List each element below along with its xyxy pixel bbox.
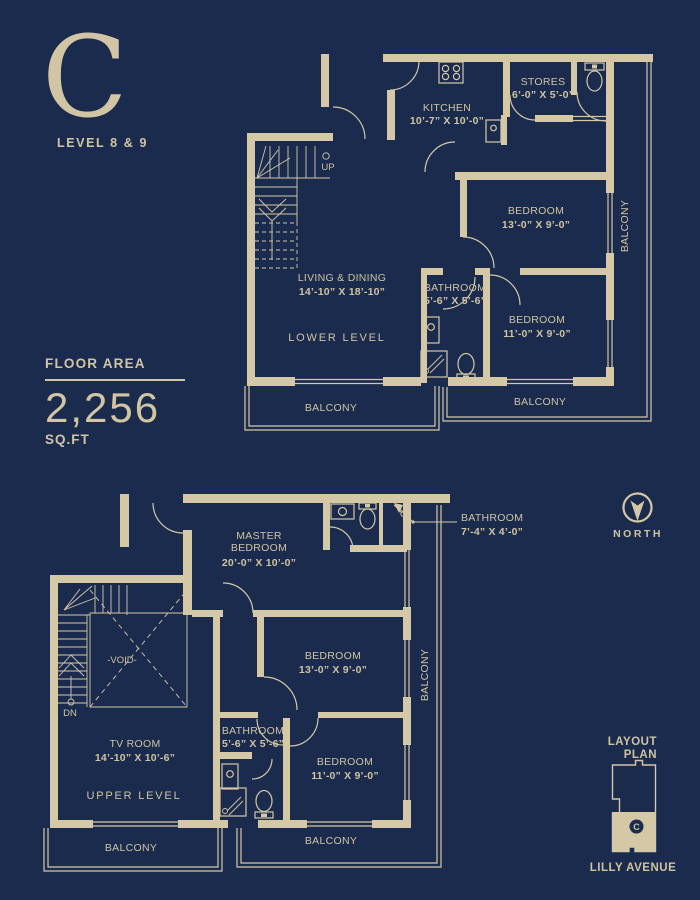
- layout-minimap: LAYOUT PLAN C LILLY AVENUE: [590, 736, 677, 874]
- bathroom-a-dims: 7’-4” X 4’-0”: [461, 526, 523, 538]
- bedroom-a-label: BEDROOM: [508, 205, 564, 217]
- balcony-label: BALCONY: [419, 649, 431, 701]
- north-arrow-icon: [631, 501, 645, 522]
- stores-label: STORES: [521, 76, 566, 88]
- bathroom2-toilet-icon: [255, 791, 273, 819]
- upper-level-label: UPPER LEVEL: [86, 790, 181, 802]
- stove-icon: [439, 62, 463, 83]
- bedroom-a-dims: 13’-0” X 9’-0”: [502, 219, 570, 231]
- balcony-label: BALCONY: [514, 396, 566, 408]
- kitchen-dims: 10’-7” X 10’-0”: [410, 115, 484, 127]
- lower-level-label: LOWER LEVEL: [288, 332, 385, 344]
- master-bedroom-dims: 20’-0” X 10’-0”: [222, 557, 296, 569]
- balcony-label: BALCONY: [105, 842, 157, 854]
- kitchen-label: KITCHEN: [423, 102, 471, 114]
- bathroom-label: BATHROOM: [424, 282, 486, 294]
- living-dims: 14’-10” X 18’-10”: [299, 286, 385, 298]
- lower-staircase: [255, 146, 330, 270]
- master-bedroom-label-2: BEDROOM: [231, 542, 287, 554]
- shower2-icon: [220, 788, 246, 816]
- layout-title-2: PLAN: [624, 749, 657, 761]
- balcony-label: BALCONY: [305, 402, 357, 414]
- master-sink-icon: [331, 504, 354, 519]
- floorplan-page: C LEVEL 8 & 9 FLOOR AREA 2,256 SQ.FT: [0, 0, 700, 900]
- bathroom-b-label: BATHROOM: [222, 725, 284, 737]
- bedroom-a-label: BEDROOM: [305, 650, 361, 662]
- unit-marker-letter: C: [633, 822, 640, 832]
- stair-dn-label: DN: [63, 708, 77, 719]
- upper-level-plan: MASTER BEDROOM 20’-0” X 10’-0” BATHROOM …: [44, 494, 523, 871]
- wc-toilet-icon: [585, 63, 604, 91]
- bedroom-b-dims: 11’-0” X 9’-0”: [311, 770, 379, 782]
- bathroom2-sink-icon: [222, 764, 238, 789]
- north-label: NORTH: [613, 528, 663, 540]
- upper-labels: MASTER BEDROOM 20’-0” X 10’-0” BATHROOM …: [63, 512, 523, 854]
- bedroom-b-label: BEDROOM: [317, 756, 373, 768]
- north-indicator: NORTH: [613, 494, 663, 541]
- bathroom-a-label: BATHROOM: [461, 512, 523, 524]
- void-label: -VOID-: [107, 655, 137, 666]
- bathroom-b-dims: 5’-6” X 5’-6”: [222, 738, 284, 750]
- bathroom-dims: 5’-6” X 5’-6”: [424, 295, 486, 307]
- bathroom-toilet-icon: [457, 354, 475, 381]
- lower-labels: KITCHEN 10’-7” X 10’-0” STORES 6’-0” X 5…: [288, 76, 631, 414]
- tv-room-dims: 14’-10” X 10’-6”: [95, 752, 175, 764]
- upper-windows: [93, 550, 409, 826]
- stair-up-label: UP: [321, 162, 334, 173]
- layout-title-1: LAYOUT: [608, 736, 657, 748]
- master-toilet-icon: [359, 503, 376, 529]
- stores-dims: 6’-0” X 5’-0”: [512, 89, 574, 101]
- street-label: LILLY AVENUE: [590, 862, 677, 874]
- floorplan-svg: KITCHEN 10’-7” X 10’-0” STORES 6’-0” X 5…: [0, 0, 700, 900]
- living-label: LIVING & DINING: [298, 272, 387, 284]
- void-area: [90, 590, 187, 707]
- master-bedroom-label-1: MASTER: [236, 530, 282, 542]
- balcony-label: BALCONY: [619, 200, 631, 252]
- lower-level-plan: KITCHEN 10’-7” X 10’-0” STORES 6’-0” X 5…: [245, 54, 653, 430]
- bedroom-b-label: BEDROOM: [509, 314, 565, 326]
- upper-staircase: [58, 585, 127, 707]
- bedroom-a-dims: 13’-0” X 9’-0”: [299, 664, 367, 676]
- bedroom-b-dims: 11’-0” X 9’-0”: [503, 328, 571, 340]
- tv-room-label: TV ROOM: [109, 738, 160, 750]
- balcony-label: BALCONY: [305, 835, 357, 847]
